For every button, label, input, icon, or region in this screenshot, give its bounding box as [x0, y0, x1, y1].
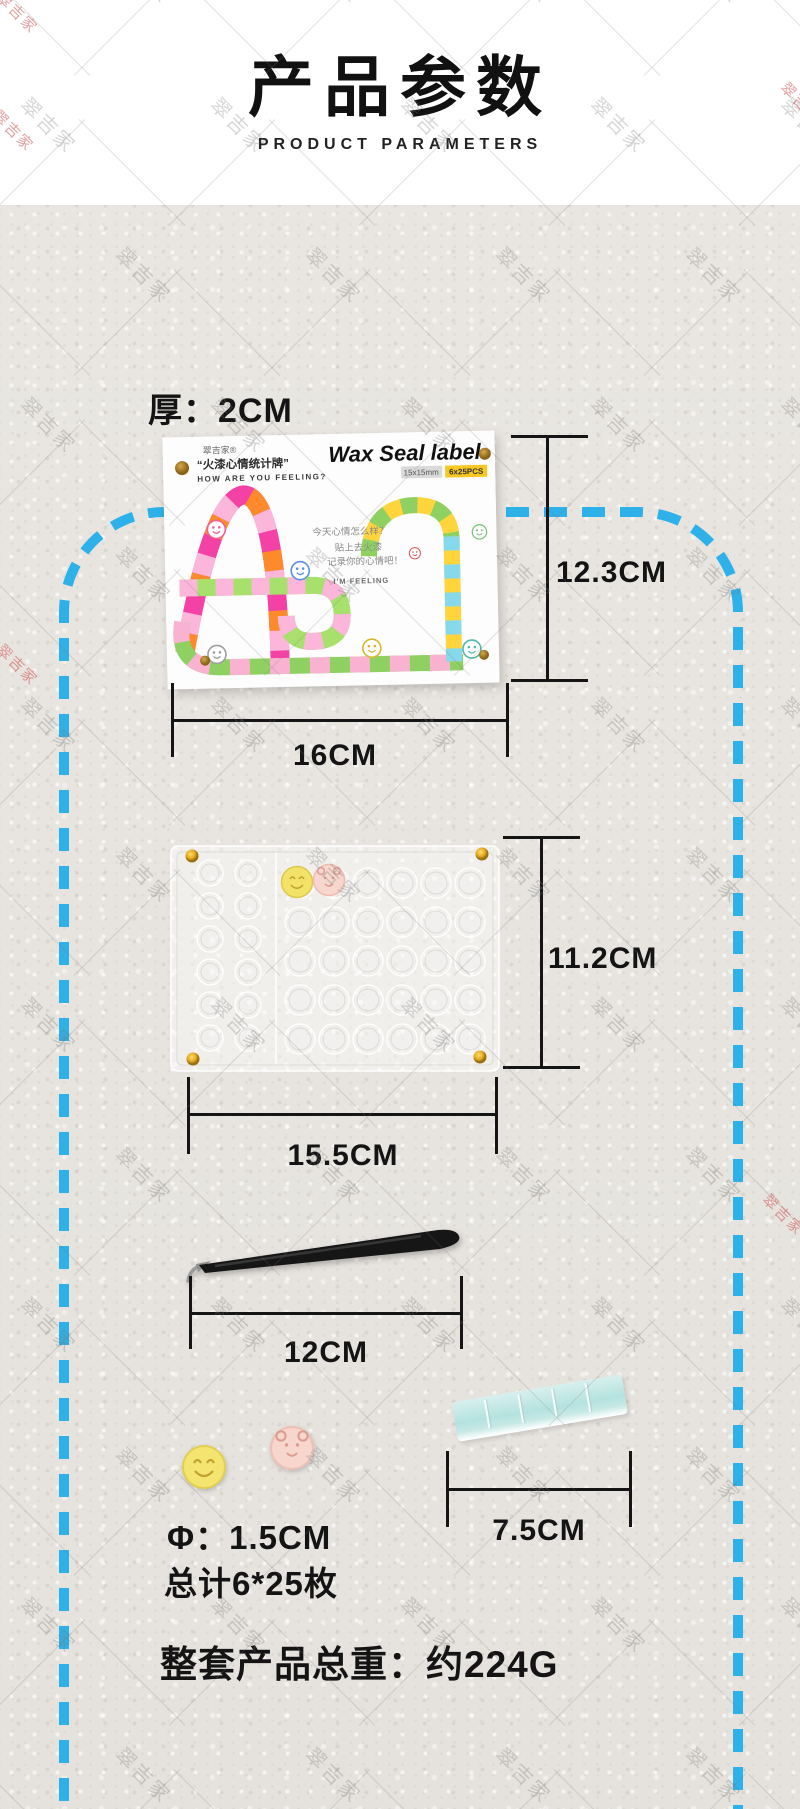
- smiley-sticker: [363, 639, 381, 657]
- dashed-border: [55, 503, 747, 1809]
- card-title: Wax Seal label: [328, 439, 482, 467]
- card-brand: 翠吉家®: [203, 444, 237, 456]
- smiley-sticker: [409, 548, 420, 559]
- card-height-measure-tick-bottom: [511, 679, 588, 682]
- wax-seal-pink: [269, 1425, 315, 1476]
- smiley-sticker: [207, 520, 225, 538]
- seal-diameter-label: Φ：1.5CM: [167, 1511, 331, 1559]
- card-width-label: 16CM: [293, 739, 377, 773]
- tweezers-measure-line: [189, 1312, 463, 1315]
- seal-count-label: 总计6*25枚: [164, 1557, 338, 1605]
- card-center-line2: 贴上去火漆: [335, 541, 383, 554]
- board-width-label: 15.5CM: [287, 1139, 398, 1173]
- strip-measure-line: [446, 1488, 632, 1491]
- page-subtitle: PRODUCT PARAMETERS: [0, 136, 800, 154]
- product-card: 翠吉家® “火漆心情统计牌” HOW ARE YOU FEELING? Wax …: [162, 431, 499, 690]
- strip-width-label: 7.5CM: [492, 1514, 585, 1548]
- card-center-caption: I'M FEELING: [333, 576, 389, 586]
- total-weight-label: 整套产品总重：约224G: [160, 1634, 559, 1688]
- gold-screw: [187, 1053, 200, 1066]
- page-title: 产品参数: [0, 34, 800, 130]
- gold-screw: [476, 848, 489, 861]
- card-spec-count: 6x25PCS: [449, 467, 484, 477]
- thickness-label: 厚：2CM: [148, 383, 293, 432]
- gold-screw: [186, 850, 199, 863]
- smiley-sticker: [291, 561, 309, 579]
- card-artwork: 翠吉家® “火漆心情统计牌” HOW ARE YOU FEELING? Wax …: [162, 431, 499, 690]
- board-height-measure-line: [540, 836, 543, 1069]
- card-height-measure-tick-top: [511, 435, 588, 438]
- acrylic-board: [170, 845, 500, 1072]
- card-spec-size: 15x15mm: [404, 468, 440, 478]
- wax-seal-yellow-small: [282, 867, 313, 898]
- header-section: 产品参数 PRODUCT PARAMETERS: [0, 0, 800, 205]
- board-height-label: 11.2CM: [548, 942, 657, 976]
- card-height-label: 12.3CM: [556, 556, 667, 590]
- page: 产品参数 PRODUCT PARAMETERS 厚：2CM: [0, 0, 800, 1809]
- card-width-measure-line: [171, 719, 509, 722]
- gold-screw: [474, 1051, 487, 1064]
- smiley-sticker: [472, 525, 487, 540]
- board-width-measure-line: [187, 1113, 498, 1116]
- board-height-measure-tick-bottom: [503, 1066, 580, 1069]
- tweezers: [183, 1223, 473, 1288]
- smiley-sticker: [463, 640, 481, 658]
- wax-seal-yellow: [181, 1444, 227, 1495]
- wax-seal-pink-small: [314, 865, 345, 896]
- card-center-line3: 记录你的心情吧！: [327, 554, 403, 568]
- card-center-line1: 今天心情怎么样？: [312, 525, 388, 539]
- smiley-sticker: [208, 645, 226, 663]
- tweezers-length-label: 12CM: [284, 1336, 368, 1370]
- card-height-measure-line: [546, 435, 549, 682]
